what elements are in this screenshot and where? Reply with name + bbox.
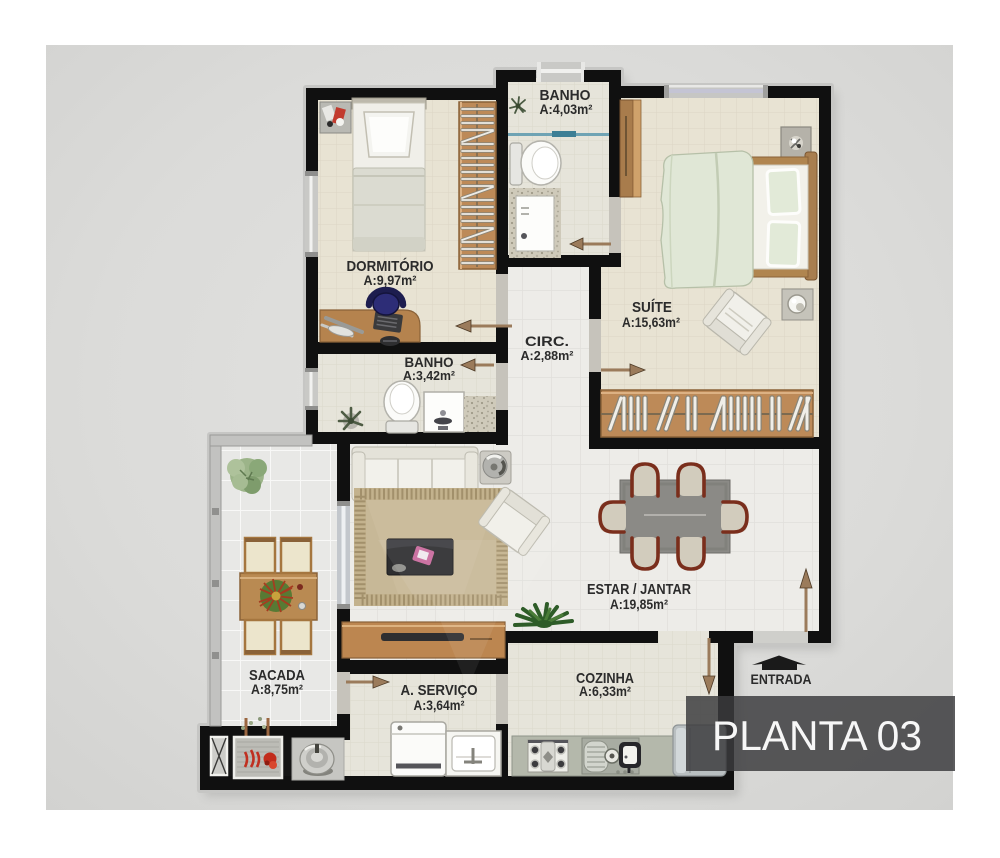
svg-text:A:8,75m²: A:8,75m² xyxy=(251,682,303,697)
svg-text:A:19,85m²: A:19,85m² xyxy=(610,597,668,612)
svg-text:A:15,63m²: A:15,63m² xyxy=(622,315,680,330)
svg-text:ESTAR / JANTAR: ESTAR / JANTAR xyxy=(587,581,691,598)
svg-text:A:6,33m²: A:6,33m² xyxy=(579,684,631,699)
svg-text:A:3,42m²: A:3,42m² xyxy=(403,368,456,383)
svg-text:A:9,97m²: A:9,97m² xyxy=(364,273,417,288)
svg-text:A:3,64m²: A:3,64m² xyxy=(414,698,465,713)
svg-text:A:4,03m²: A:4,03m² xyxy=(540,102,593,117)
svg-text:A:2,88m²: A:2,88m² xyxy=(521,348,575,363)
svg-text:ENTRADA: ENTRADA xyxy=(751,671,812,687)
svg-text:SUÍTE: SUÍTE xyxy=(632,299,672,316)
svg-text:A. SERVIÇO: A. SERVIÇO xyxy=(401,682,478,699)
svg-text:CIRC.: CIRC. xyxy=(525,333,569,349)
svg-text:PLANTA 03: PLANTA 03 xyxy=(712,712,922,759)
